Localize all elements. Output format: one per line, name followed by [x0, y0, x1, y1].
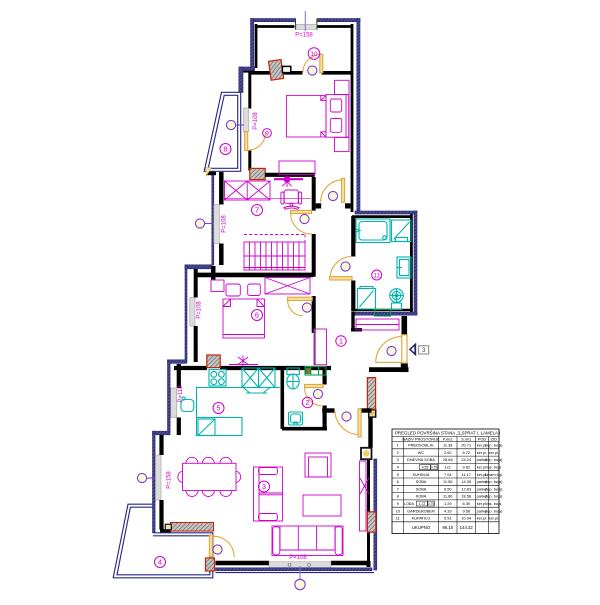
svg-text:144.32: 144.32 — [460, 525, 474, 530]
svg-text:P=108: P=108 — [222, 215, 228, 233]
svg-text:fas. boja: fas. boja — [486, 465, 502, 470]
svg-text:ker.pl.: ker.pl. — [477, 450, 487, 455]
svg-text:(lep. boja): (lep. boja) — [485, 508, 503, 513]
svg-text:24.24: 24.24 — [461, 457, 472, 462]
svg-text:PREGLED POVRŠINA STANA „3„SPRA: PREGLED POVRŠINA STANA „3„SPRAT I, LAMEL… — [395, 431, 500, 436]
svg-text:11.86: 11.86 — [443, 494, 452, 499]
svg-text:ZID: ZID — [491, 437, 497, 442]
svg-text:ker.pl.: ker.pl. — [477, 516, 487, 521]
svg-text:ker.pl.: ker.pl. — [489, 516, 499, 521]
svg-text:ker.pl.: ker.pl. — [489, 450, 499, 455]
svg-text:10.04: 10.04 — [461, 516, 472, 521]
svg-text:keram.čgl.: keram.čgl. — [485, 472, 503, 477]
svg-text:P=118: P=118 — [178, 385, 184, 403]
svg-text:8: 8 — [223, 145, 227, 154]
svg-text:3: 3 — [262, 482, 266, 491]
svg-text:11: 11 — [396, 516, 400, 521]
svg-text:9: 9 — [397, 501, 399, 506]
svg-text:2: 2 — [397, 450, 399, 455]
svg-text:SOBA: SOBA — [416, 494, 427, 499]
svg-text:GARDEROBER: GARDEROBER — [407, 508, 435, 513]
svg-text:3: 3 — [397, 457, 399, 462]
svg-text:14.35: 14.35 — [461, 479, 471, 484]
svg-text:(lep. boja): (lep. boja) — [485, 494, 503, 499]
svg-text:6: 6 — [255, 311, 259, 320]
svg-text:P=108: P=108 — [253, 112, 259, 130]
svg-text:NAZIV PROSTORIJE: NAZIV PROSTORIJE — [402, 437, 440, 442]
svg-text:(lep. boja): (lep. boja) — [485, 457, 503, 462]
svg-text:12.83: 12.83 — [461, 486, 471, 491]
svg-text:20.71: 20.71 — [461, 443, 471, 448]
svg-text:1.29: 1.29 — [444, 501, 452, 506]
svg-text:11: 11 — [373, 273, 380, 280]
svg-text:7: 7 — [255, 206, 259, 215]
svg-text:PREDSOBLJE: PREDSOBLJE — [408, 443, 434, 448]
svg-text:P=158: P=158 — [295, 33, 313, 39]
svg-text:KUPATILO: KUPATILO — [412, 516, 431, 521]
svg-text:1.72: 1.72 — [419, 502, 426, 506]
svg-text:SOBA: SOBA — [416, 479, 427, 484]
svg-text:5: 5 — [216, 404, 220, 413]
svg-text:POD: POD — [478, 437, 487, 442]
svg-text:1: 1 — [339, 337, 343, 346]
svg-text:0.75: 0.75 — [428, 502, 435, 506]
svg-text:7.04: 7.04 — [444, 472, 452, 477]
svg-text:SOBA: SOBA — [416, 486, 427, 491]
svg-text:1: 1 — [397, 443, 399, 448]
svg-text:DNEVNA SOBA: DNEVNA SOBA — [407, 457, 435, 462]
svg-text:UKUPNO: UKUPNO — [412, 525, 431, 530]
svg-text:5: 5 — [397, 472, 399, 477]
svg-text:4.33: 4.33 — [444, 508, 452, 513]
svg-text:fas. boja: fas. boja — [486, 501, 502, 506]
svg-text:7: 7 — [397, 486, 399, 491]
svg-text:10: 10 — [311, 51, 318, 58]
svg-text:8: 8 — [397, 494, 399, 499]
svg-text:6.72: 6.72 — [462, 450, 470, 455]
svg-text:S./m1: S./m1 — [461, 437, 471, 442]
svg-text:9.58: 9.58 — [462, 508, 470, 513]
svg-text:3: 3 — [422, 347, 426, 354]
svg-text:(lep. boja): (lep. boja) — [485, 486, 503, 491]
svg-text:5.91: 5.91 — [444, 516, 452, 521]
svg-text:(lep. boja): (lep. boja) — [485, 479, 503, 484]
svg-text:1x1: 1x1 — [445, 465, 451, 470]
svg-text:6.39: 6.39 — [462, 501, 470, 506]
svg-text:2.62: 2.62 — [444, 450, 452, 455]
svg-text:9: 9 — [265, 131, 269, 138]
svg-text:9.82: 9.82 — [462, 465, 470, 470]
svg-text:(lep. boja): (lep. boja) — [485, 443, 503, 448]
svg-text:11.17: 11.17 — [462, 472, 471, 477]
svg-text:18.58: 18.58 — [461, 494, 471, 499]
svg-text:28.66: 28.66 — [443, 457, 453, 462]
svg-text:P=108: P=108 — [289, 555, 307, 561]
svg-text:2: 2 — [305, 398, 309, 407]
svg-text:11.55: 11.55 — [443, 479, 452, 484]
svg-text:P=108: P=108 — [197, 301, 203, 319]
svg-text:11.38: 11.38 — [443, 443, 452, 448]
svg-text:KUHINJA: KUHINJA — [413, 472, 430, 477]
svg-text:WC: WC — [418, 450, 425, 455]
svg-text:P./m2: P./m2 — [443, 437, 453, 442]
svg-text:LOĐA: LOĐA — [404, 502, 414, 506]
svg-text:4.55: 4.55 — [422, 465, 429, 469]
svg-text:P=158: P=158 — [167, 471, 173, 489]
svg-text:4: 4 — [158, 558, 162, 567]
svg-text:96.10: 96.10 — [442, 525, 453, 530]
svg-text:0.75: 0.75 — [431, 465, 438, 469]
svg-text:6: 6 — [397, 479, 399, 484]
svg-text:6.50: 6.50 — [444, 486, 452, 491]
